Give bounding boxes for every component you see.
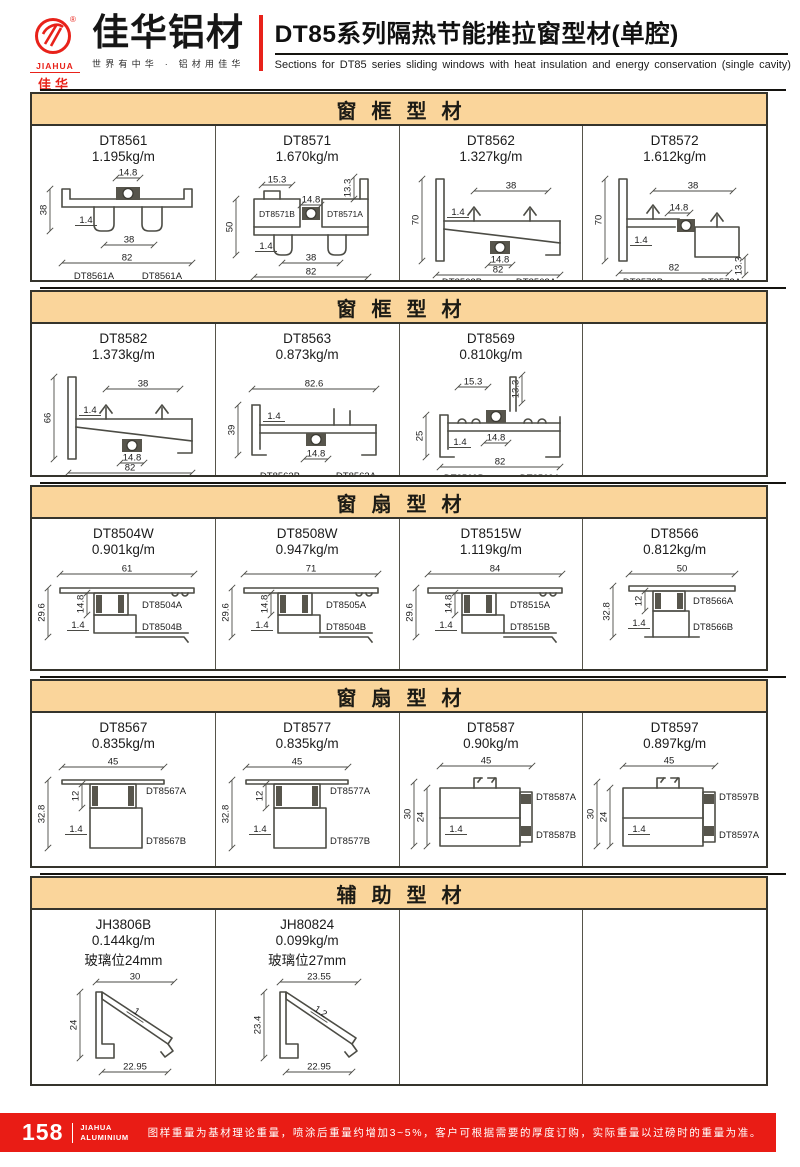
section-4: 窗扇型材DT85670.835kg/m 4532.8121.4 DT8567AD…: [30, 679, 768, 868]
svg-text:DT8505A: DT8505A: [326, 600, 367, 611]
profile-weight: 0.897kg/m: [583, 736, 766, 751]
section-3: 窗扇型材DT8504W0.901kg/m 6129.614.81.4 DT850…: [30, 485, 768, 671]
profile-drawing: 3024 1 22.95: [32, 970, 217, 1086]
svg-text:14.8: 14.8: [670, 203, 689, 214]
profile-code: DT8515W: [400, 526, 583, 541]
profile-weight: 1.612kg/m: [583, 149, 766, 164]
svg-text:DT8566B: DT8566B: [693, 622, 733, 633]
company-block: 佳华铝材 世界有中华 · 铝材用佳华: [92, 14, 245, 70]
profile-drawing: 23.5523.4 1.2 22.95: [216, 970, 401, 1086]
profile-weight: 0.812kg/m: [583, 542, 766, 557]
svg-text:30: 30: [402, 809, 413, 820]
svg-text:30: 30: [130, 972, 141, 983]
profile-cell-DT8567: DT85670.835kg/m 4532.8121.4 DT8567ADT856…: [32, 713, 215, 866]
section-row: DT8504W0.901kg/m 6129.614.81.4 DT8504ADT…: [30, 519, 768, 671]
svg-text:1.4: 1.4: [633, 618, 646, 629]
svg-text:29.6: 29.6: [404, 603, 415, 622]
company-tagline: 世界有中华 · 铝材用佳华: [92, 57, 245, 70]
svg-text:DT8561A: DT8561A: [74, 271, 115, 282]
profile-code: DT8572: [583, 133, 766, 148]
footer-brand-line2: ALUMINIUM: [80, 1133, 128, 1143]
svg-text:45: 45: [291, 757, 302, 768]
profile-drawing: 4530241.4 DT8587ADT8587B: [400, 752, 585, 868]
title-block: DT85系列隔热节能推拉窗型材(单腔) Sections for DT85 se…: [275, 14, 800, 71]
profile-code: DT8563: [216, 331, 399, 346]
page-subtitle: Sections for DT85 series sliding windows…: [275, 59, 788, 71]
footer-brand: JIAHUA ALUMINIUM: [73, 1123, 128, 1143]
svg-text:38: 38: [39, 205, 50, 216]
svg-text:70: 70: [410, 215, 421, 226]
svg-text:38: 38: [124, 235, 135, 246]
profile-cell-DT8566: DT85660.812kg/m 5032.8121.4 DT8566ADT856…: [582, 519, 766, 669]
profile-weight: 1.670kg/m: [216, 149, 399, 164]
footer-note: 图样重量为基材理论重量，喷涂后重量约增加3~5%，客户可根据需要的厚度订购，实际…: [148, 1125, 776, 1140]
profile-cell-DT8569: DT85690.810kg/m 15.313.3 251.414.8 82 DT…: [399, 324, 583, 475]
svg-text:32.8: 32.8: [220, 805, 231, 824]
page-header: ® JIAHUA 佳华 佳华铝材 世界有中华 · 铝材用佳华 DT85系列隔热节…: [0, 0, 800, 84]
svg-text:DT8572B: DT8572B: [623, 277, 663, 282]
profile-code: DT8582: [32, 331, 215, 346]
svg-text:25: 25: [414, 431, 425, 442]
page-title: DT85系列隔热节能推拉窗型材(单腔): [275, 15, 788, 50]
svg-text:DT8577B: DT8577B: [330, 836, 370, 847]
glass-position-note: 玻璃位27mm: [216, 949, 399, 969]
svg-text:24: 24: [69, 1020, 80, 1031]
profile-weight: 0.873kg/m: [216, 347, 399, 362]
svg-text:1.4: 1.4: [255, 620, 268, 631]
profile-weight: 0.835kg/m: [32, 736, 215, 751]
profile-drawing: 15.313.3 251.414.8 82 DT8569BDT8569A: [400, 363, 585, 477]
svg-text:13.3: 13.3: [734, 257, 745, 276]
svg-text:12: 12: [71, 791, 82, 802]
svg-text:1.4: 1.4: [69, 824, 82, 835]
empty-cell: [582, 910, 766, 1084]
profile-code: DT8571: [216, 133, 399, 148]
svg-text:1.4: 1.4: [267, 411, 280, 422]
section-title: 窗扇型材: [30, 485, 768, 519]
svg-text:82: 82: [492, 265, 503, 276]
profile-code: JH3806B: [32, 917, 215, 932]
section-title: 窗框型材: [30, 92, 768, 126]
svg-text:23.55: 23.55: [307, 972, 331, 983]
svg-text:1.4: 1.4: [253, 824, 266, 835]
brand-en: JIAHUA: [26, 61, 84, 71]
profile-weight: 0.099kg/m: [216, 933, 399, 948]
profile-drawing: 7129.614.81.4 DT8505ADT8504B: [216, 558, 401, 666]
section-title: 窗框型材: [30, 290, 768, 324]
svg-text:82: 82: [122, 253, 133, 264]
svg-text:DT8566A: DT8566A: [693, 596, 734, 607]
svg-text:DT8562B: DT8562B: [441, 277, 481, 282]
svg-text:45: 45: [108, 757, 119, 768]
svg-text:1.4: 1.4: [439, 620, 452, 631]
profile-code: DT8561: [32, 133, 215, 148]
svg-text:66: 66: [43, 413, 54, 424]
svg-text:45: 45: [480, 756, 491, 767]
svg-text:DT8597B: DT8597B: [719, 792, 759, 803]
svg-text:1.4: 1.4: [83, 405, 96, 416]
jiahua-logo-icon: ®: [32, 14, 78, 58]
company-name: 佳华铝材: [92, 14, 245, 52]
svg-text:DT8562A: DT8562A: [515, 277, 556, 282]
svg-text:DT8563B: DT8563B: [260, 471, 300, 477]
svg-text:24: 24: [415, 812, 426, 823]
profile-weight: 1.373kg/m: [32, 347, 215, 362]
svg-text:14.8: 14.8: [486, 433, 505, 444]
profile-code: DT8508W: [216, 526, 399, 541]
svg-text:DT8569B: DT8569B: [443, 473, 483, 477]
profile-code: DT8504W: [32, 526, 215, 541]
svg-text:1.4: 1.4: [453, 437, 466, 448]
svg-text:1.4: 1.4: [79, 215, 92, 226]
profile-cell-DT8582: DT85821.373kg/m 38661.4 14.882 DT8582BDT…: [32, 324, 215, 475]
section-row: DT85821.373kg/m 38661.4 14.882 DT8582BDT…: [30, 324, 768, 477]
profile-weight: 1.327kg/m: [400, 149, 583, 164]
profile-cell-JH80824: JH808240.099kg/m玻璃位27mm 23.5523.4 1.2 22…: [215, 910, 399, 1084]
section-1: 窗框型材DT85611.195kg/m 14.8381.4 3882 DT856…: [30, 92, 768, 282]
profile-code: DT8569: [400, 331, 583, 346]
svg-text:24: 24: [599, 812, 610, 823]
profile-code: DT8562: [400, 133, 583, 148]
glass-position-note: 玻璃位24mm: [32, 949, 215, 969]
svg-text:DT8504B: DT8504B: [326, 622, 366, 633]
profile-drawing: 4532.8121.4 DT8567ADT8567B: [32, 752, 217, 868]
svg-text:22.95: 22.95: [123, 1062, 147, 1073]
svg-text:50: 50: [677, 564, 688, 575]
svg-text:DT8572A: DT8572A: [701, 277, 742, 282]
svg-text:82: 82: [125, 463, 136, 474]
section-2: 窗框型材DT85821.373kg/m 38661.4 14.882 DT858…: [30, 290, 768, 477]
section-row: DT85611.195kg/m 14.8381.4 3882 DT8561ADT…: [30, 126, 768, 282]
svg-text:45: 45: [664, 756, 675, 767]
profile-code: JH80824: [216, 917, 399, 932]
svg-text:12: 12: [254, 791, 265, 802]
profile-weight: 1.195kg/m: [32, 149, 215, 164]
svg-text:DT8563A: DT8563A: [336, 471, 377, 477]
svg-text:32.8: 32.8: [602, 602, 613, 621]
section-row: JH3806B0.144kg/m玻璃位24mm 3024 1 22.95JH80…: [30, 910, 768, 1086]
svg-text:14.8: 14.8: [76, 595, 87, 614]
profile-code: DT8566: [583, 526, 766, 541]
page-footer: 158 JIAHUA ALUMINIUM 图样重量为基材理论重量，喷涂后重量约增…: [0, 1113, 776, 1152]
svg-text:DT8582A: DT8582A: [148, 475, 189, 477]
svg-text:DT8597A: DT8597A: [719, 830, 760, 841]
profile-weight: 0.90kg/m: [400, 736, 583, 751]
page-number: 158: [0, 1119, 72, 1146]
profile-cell-DT8571: DT85711.670kg/m 15.313.314.8 501.4 3882 …: [215, 126, 399, 280]
profile-drawing: 38701.4 14.882 DT8562BDT8562A: [400, 165, 585, 282]
svg-text:DT8515A: DT8515A: [510, 600, 551, 611]
svg-text:DT8582B: DT8582B: [74, 475, 114, 477]
section-title: 辅助型材: [30, 876, 768, 910]
svg-text:DT8567B: DT8567B: [146, 836, 186, 847]
svg-text:14.8: 14.8: [259, 595, 270, 614]
svg-text:39: 39: [226, 425, 237, 436]
section-title: 窗扇型材: [30, 679, 768, 713]
profile-cell-DT8597: DT85970.897kg/m 4530241.4 DT8597BDT8597A: [582, 713, 766, 866]
section-5: 辅助型材JH3806B0.144kg/m玻璃位24mm 3024 1 22.95…: [30, 876, 768, 1086]
svg-text:38: 38: [305, 253, 316, 264]
svg-text:12: 12: [634, 596, 645, 607]
profile-drawing: 6129.614.81.4 DT8504ADT8504B: [32, 558, 217, 666]
profile-drawing: 15.313.314.8 501.4 3882 DT8571BDT8571A: [216, 165, 401, 282]
svg-text:1.4: 1.4: [633, 824, 646, 835]
svg-text:DT8571B: DT8571B: [259, 209, 295, 219]
svg-text:DT8571A: DT8571A: [327, 209, 363, 219]
svg-text:82.6: 82.6: [305, 379, 324, 390]
svg-text:DT8577A: DT8577A: [330, 786, 371, 797]
header-divider: [259, 15, 263, 71]
svg-text:DT8515B: DT8515B: [510, 622, 550, 633]
svg-text:50: 50: [224, 222, 235, 233]
svg-text:14.8: 14.8: [119, 168, 138, 179]
brand-rule: [30, 72, 80, 73]
svg-text:1.4: 1.4: [71, 620, 84, 631]
svg-text:29.6: 29.6: [37, 603, 48, 622]
profile-drawing: 4530241.4 DT8597BDT8597A: [583, 752, 768, 868]
profile-drawing: 4532.8121.4 DT8577ADT8577B: [216, 752, 401, 868]
svg-text:DT8587B: DT8587B: [536, 830, 576, 841]
svg-text:15.3: 15.3: [268, 175, 287, 186]
profile-cell-DT8563: DT85630.873kg/m 82.6 391.414.8 DT8563BDT…: [215, 324, 399, 475]
svg-text:1.4: 1.4: [451, 207, 464, 218]
profile-cell-JH3806B: JH3806B0.144kg/m玻璃位24mm 3024 1 22.95: [32, 910, 215, 1084]
svg-text:70: 70: [594, 215, 605, 226]
profile-code: DT8597: [583, 720, 766, 735]
profile-drawing: 38661.4 14.882 DT8582BDT8582A: [32, 363, 217, 477]
brand-block: ® JIAHUA 佳华: [26, 14, 84, 93]
svg-text:61: 61: [122, 564, 133, 575]
svg-text:32.8: 32.8: [37, 805, 48, 824]
profile-cell-DT8562: DT85621.327kg/m 38701.4 14.882 DT8562BDT…: [399, 126, 583, 280]
svg-text:14.8: 14.8: [307, 449, 326, 460]
svg-text:15.3: 15.3: [463, 377, 482, 388]
svg-text:DT8561A: DT8561A: [142, 271, 183, 282]
profile-cell-DT8561: DT85611.195kg/m 14.8381.4 3882 DT8561ADT…: [32, 126, 215, 280]
profile-weight: 1.119kg/m: [400, 542, 583, 557]
svg-text:22.95: 22.95: [307, 1062, 331, 1073]
svg-text:14.8: 14.8: [443, 595, 454, 614]
svg-text:14.8: 14.8: [302, 195, 321, 206]
profile-weight: 0.144kg/m: [32, 933, 215, 948]
profile-drawing: 387014.8 1.48213.3 DT8572BDT8572A: [583, 165, 768, 282]
svg-text:DT8504B: DT8504B: [142, 622, 182, 633]
svg-text:13.3: 13.3: [342, 179, 353, 198]
svg-text:DT8504A: DT8504A: [142, 600, 183, 611]
profile-drawing: 14.8381.4 3882 DT8561ADT8561A: [32, 165, 217, 282]
empty-cell: [582, 324, 766, 475]
registered-mark: ®: [70, 15, 76, 24]
svg-text:23.4: 23.4: [252, 1016, 263, 1035]
profile-cell-DT8508W: DT8508W0.947kg/m 7129.614.81.4 DT8505ADT…: [215, 519, 399, 669]
svg-text:DT8569A: DT8569A: [519, 473, 560, 477]
profile-cell-DT8577: DT85770.835kg/m 4532.8121.4 DT8577ADT857…: [215, 713, 399, 866]
svg-text:29.6: 29.6: [220, 603, 231, 622]
profile-code: DT8567: [32, 720, 215, 735]
empty-cell: [399, 910, 583, 1084]
profile-cell-DT8572: DT85721.612kg/m 387014.8 1.48213.3 DT857…: [582, 126, 766, 280]
svg-text:82: 82: [494, 457, 505, 468]
svg-text:38: 38: [688, 181, 699, 192]
svg-text:1.4: 1.4: [259, 241, 272, 252]
profile-drawing: 5032.8121.4 DT8566ADT8566B: [583, 558, 768, 666]
profile-drawing: 82.6 391.414.8 DT8563BDT8563A: [216, 363, 401, 477]
profile-weight: 0.901kg/m: [32, 542, 215, 557]
svg-text:82: 82: [305, 267, 316, 278]
profile-cell-DT8515W: DT8515W1.119kg/m 8429.614.81.4 DT8515ADT…: [399, 519, 583, 669]
profile-code: DT8577: [216, 720, 399, 735]
profile-cell-DT8504W: DT8504W0.901kg/m 6129.614.81.4 DT8504ADT…: [32, 519, 215, 669]
profile-sections: 窗框型材DT85611.195kg/m 14.8381.4 3882 DT856…: [30, 92, 768, 1086]
section-row: DT85670.835kg/m 4532.8121.4 DT8567ADT856…: [30, 713, 768, 868]
svg-text:DT8587A: DT8587A: [536, 792, 577, 803]
profile-code: DT8587: [400, 720, 583, 735]
svg-text:DT8567A: DT8567A: [146, 786, 187, 797]
catalog-page: ® JIAHUA 佳华 佳华铝材 世界有中华 · 铝材用佳华 DT85系列隔热节…: [0, 0, 800, 1167]
svg-text:82: 82: [669, 263, 680, 274]
profile-drawing: 8429.614.81.4 DT8515ADT8515B: [400, 558, 585, 666]
svg-text:30: 30: [586, 809, 597, 820]
svg-text:84: 84: [489, 564, 500, 575]
profile-weight: 0.835kg/m: [216, 736, 399, 751]
profile-cell-DT8587: DT85870.90kg/m 4530241.4 DT8587ADT8587B: [399, 713, 583, 866]
profile-weight: 0.947kg/m: [216, 542, 399, 557]
title-rule: [275, 53, 788, 55]
svg-text:1.4: 1.4: [635, 235, 648, 246]
svg-text:71: 71: [305, 564, 316, 575]
svg-text:38: 38: [138, 379, 149, 390]
svg-text:38: 38: [505, 181, 516, 192]
svg-text:1.4: 1.4: [449, 824, 462, 835]
profile-weight: 0.810kg/m: [400, 347, 583, 362]
footer-brand-line1: JIAHUA: [80, 1123, 128, 1133]
